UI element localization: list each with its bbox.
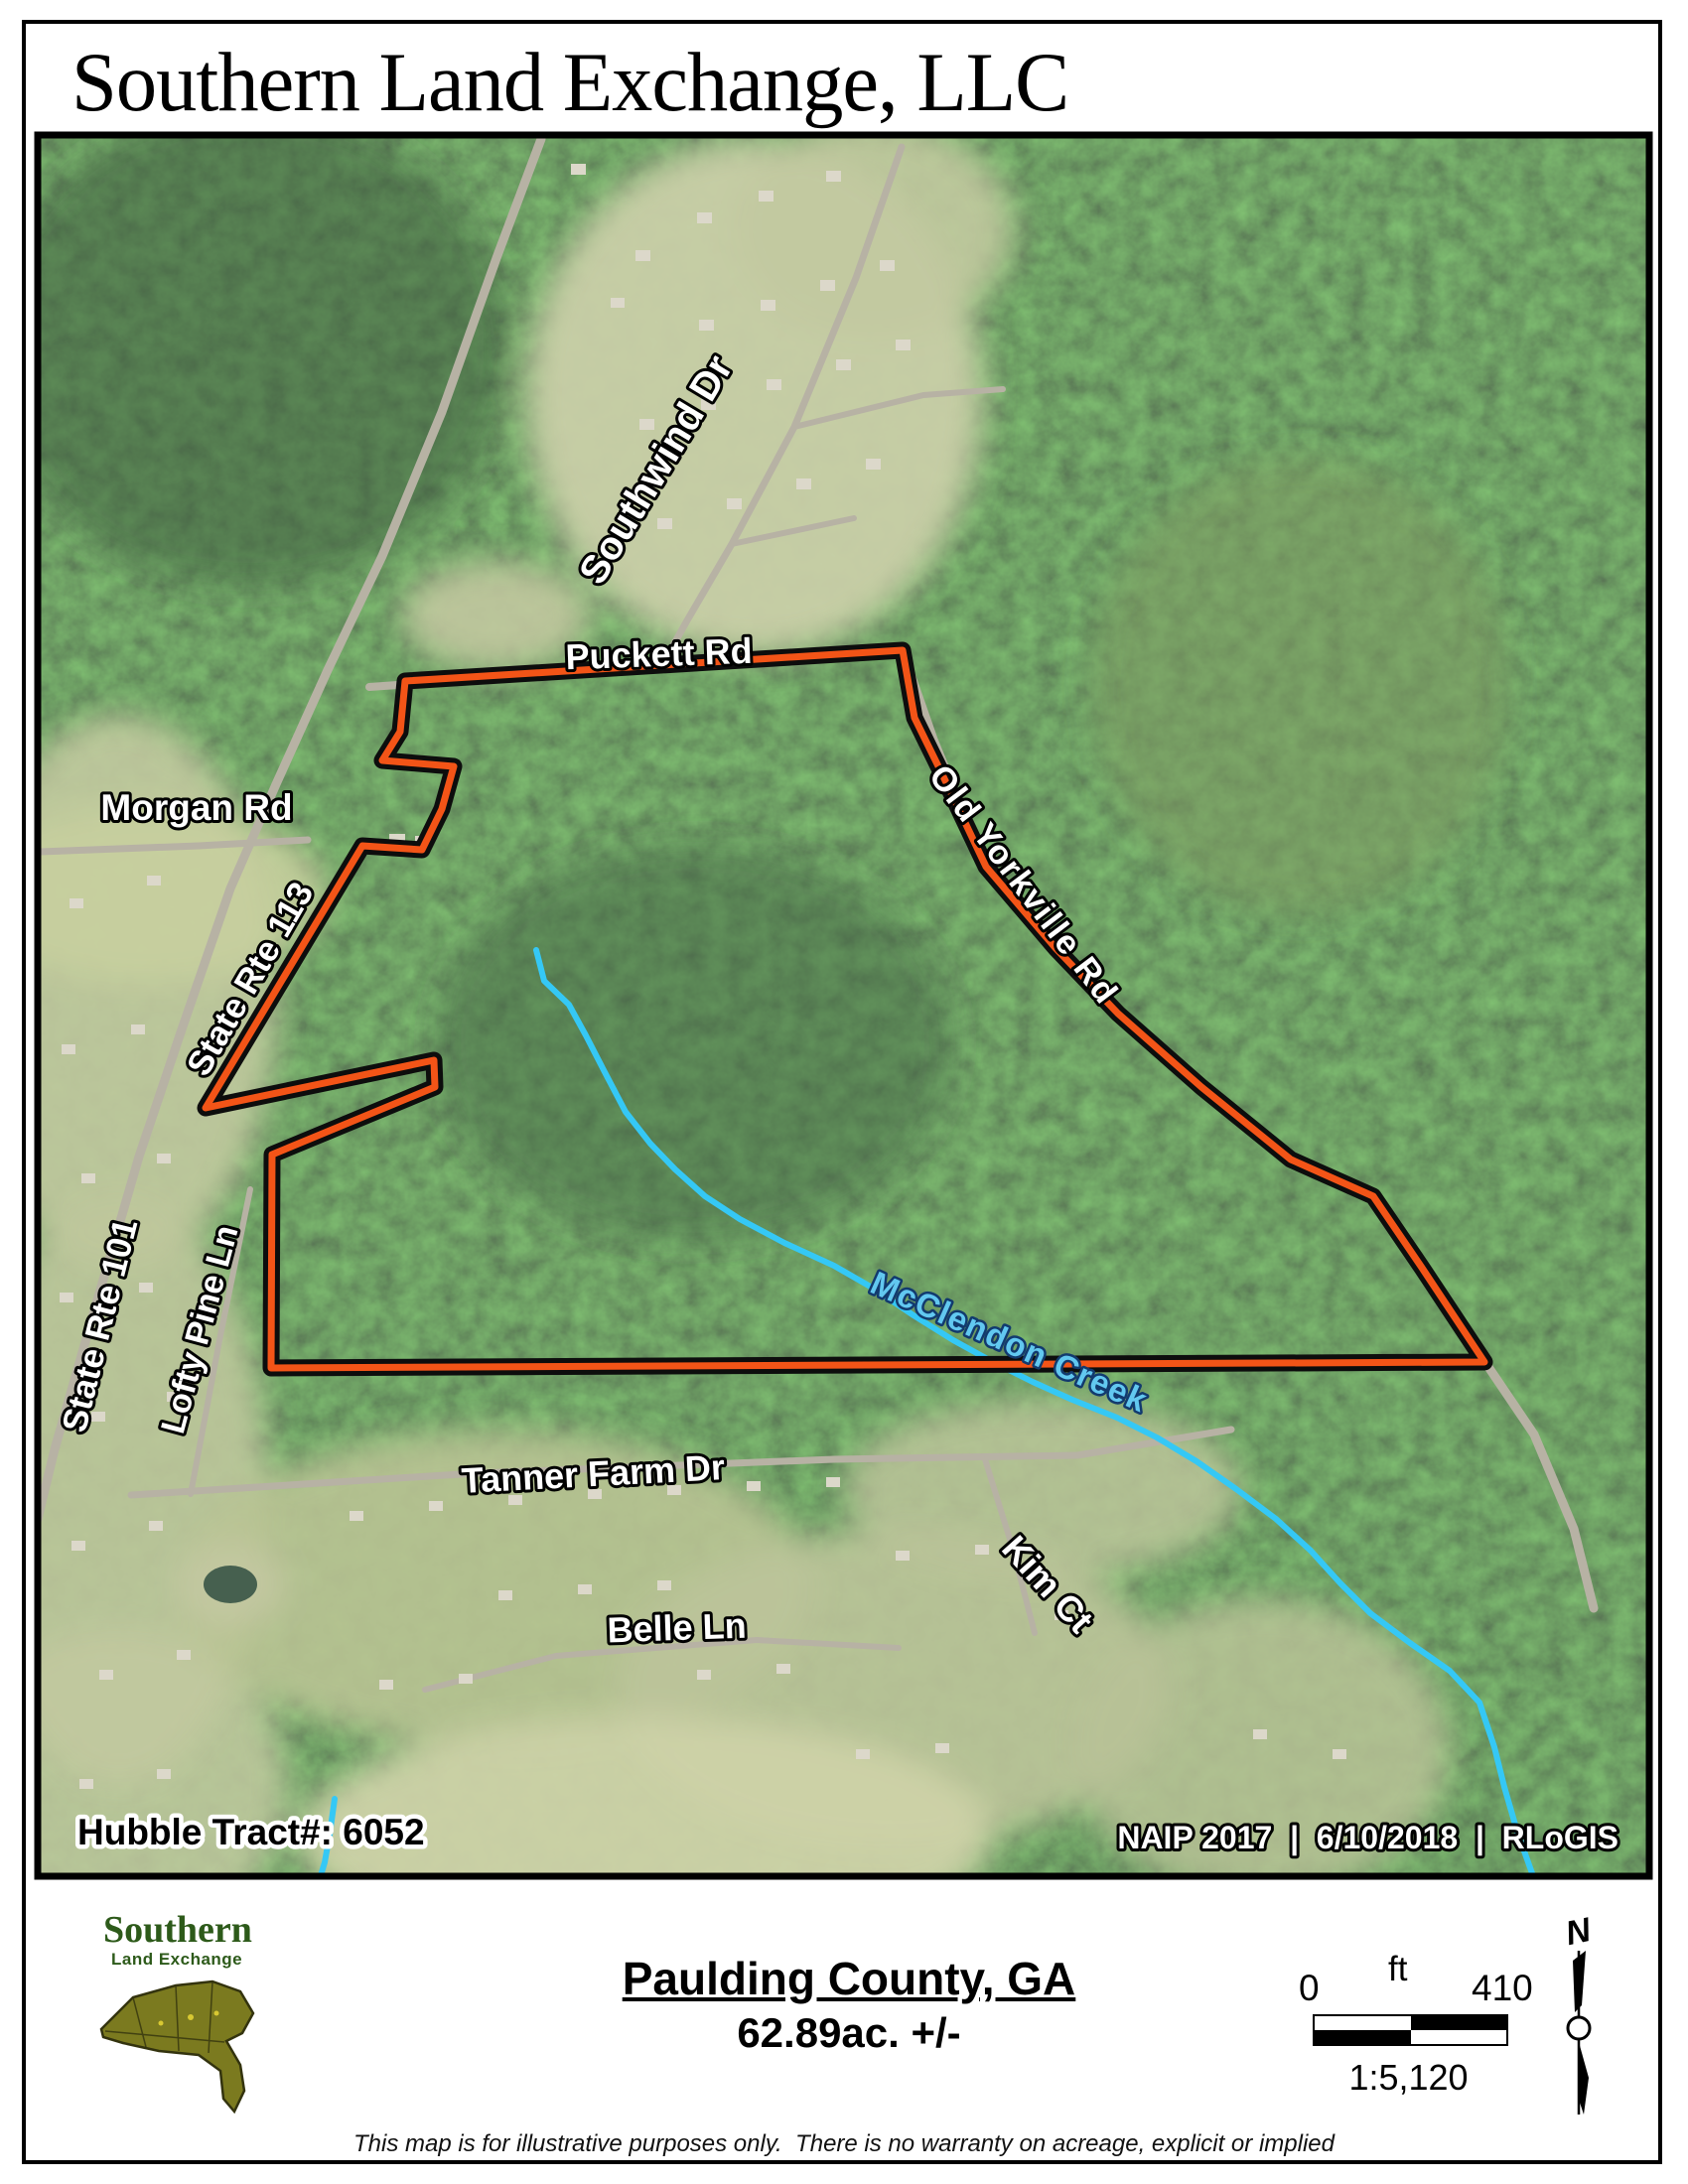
- scale-bar: [1313, 2014, 1508, 2046]
- logo-text-southern: Southern: [103, 1908, 252, 1952]
- scale-unit-label: ft: [1388, 1950, 1407, 1989]
- north-arrow-icon: N: [1539, 1911, 1618, 2124]
- road-label-morgan-rd: Morgan Rd: [100, 787, 292, 828]
- scale-bar-segment: [1315, 2016, 1411, 2030]
- scale-ratio-label: 1:5,120: [1313, 2057, 1504, 2099]
- acreage-label: 62.89ac. +/-: [427, 2009, 1271, 2057]
- pond: [204, 1566, 257, 1603]
- logo-southeast-us-icon: [91, 1968, 270, 2131]
- disclaimer-text: This map is for illustrative purposes on…: [0, 2130, 1688, 2158]
- scale-bar-segment: [1411, 2016, 1507, 2030]
- scale-bar-segment: [1411, 2030, 1507, 2044]
- logo-text-land-exchange: Land Exchange: [111, 1950, 242, 1970]
- scale-zero-label: 0: [1299, 1968, 1320, 2009]
- county-title: Paulding County, GA: [427, 1952, 1271, 2005]
- road-label-puckett-rd: Puckett Rd: [565, 630, 753, 678]
- aerial-map: Southwind Dr Puckett Rd Morgan Rd State …: [0, 0, 1688, 2184]
- north-arrow-n-label: N: [1562, 1911, 1595, 1953]
- tract-number-label: Hubble Tract#: 6052: [77, 1812, 425, 1852]
- scale-max-label: 410: [1472, 1968, 1533, 2009]
- scale-bar-segment: [1315, 2030, 1411, 2044]
- road-label-belle-ln: Belle Ln: [607, 1605, 747, 1651]
- imagery-credits-label: NAIP 2017 | 6/10/2018 | RLoGIS: [1117, 1820, 1618, 1855]
